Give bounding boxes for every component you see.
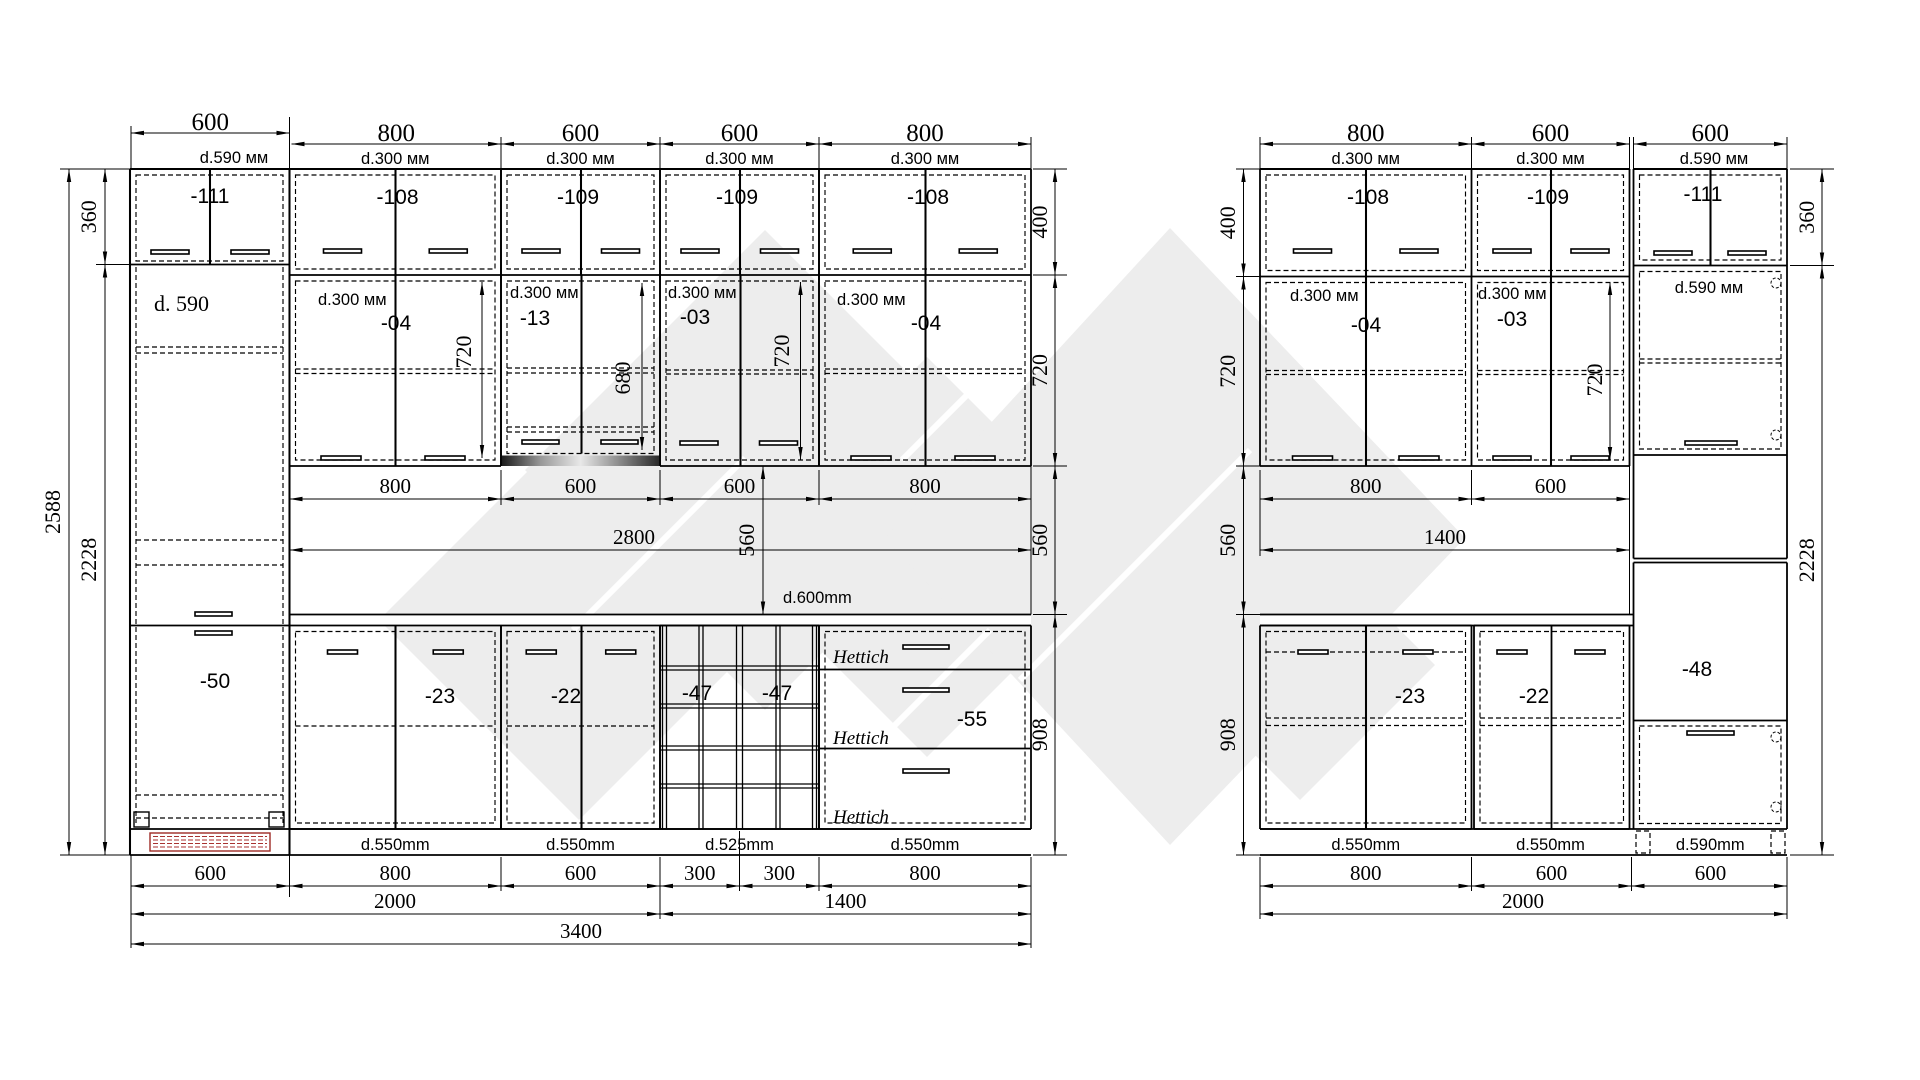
svg-text:d.550mm: d.550mm [1516, 836, 1585, 854]
svg-text:600: 600 [1692, 120, 1730, 147]
svg-text:800: 800 [1347, 120, 1385, 147]
svg-text:720: 720 [1582, 364, 1607, 397]
svg-text:360: 360 [1794, 201, 1819, 234]
svg-text:-50: -50 [200, 670, 230, 693]
svg-text:560: 560 [1215, 524, 1240, 557]
svg-text:d.300 мм: d.300 мм [1290, 287, 1359, 305]
svg-text:-109: -109 [716, 186, 758, 209]
svg-text:-03: -03 [1497, 308, 1527, 331]
svg-text:d.300 мм: d.300 мм [891, 150, 960, 168]
svg-text:800: 800 [906, 120, 944, 147]
svg-text:720: 720 [451, 336, 476, 369]
svg-text:d.300 мм: d.300 мм [546, 150, 615, 168]
svg-text:d.300 мм: d.300 мм [1478, 285, 1547, 303]
svg-text:-23: -23 [1395, 685, 1425, 708]
svg-text:d.590 мм: d.590 мм [1680, 150, 1749, 168]
svg-text:600: 600 [1532, 120, 1570, 147]
svg-text:2228: 2228 [76, 538, 101, 582]
svg-text:d.300 мм: d.300 мм [361, 150, 430, 168]
svg-text:-111: -111 [1684, 183, 1723, 206]
svg-text:-48: -48 [1682, 658, 1712, 681]
svg-text:2588: 2588 [40, 490, 65, 534]
svg-text:d.300 мм: d.300 мм [510, 284, 579, 302]
svg-text:800: 800 [909, 474, 941, 498]
svg-text:600: 600 [565, 861, 597, 885]
svg-text:800: 800 [909, 861, 941, 885]
svg-text:-04: -04 [911, 312, 942, 335]
svg-text:3400: 3400 [560, 919, 602, 943]
svg-text:d. 590: d. 590 [154, 291, 209, 316]
svg-text:1400: 1400 [825, 889, 867, 913]
svg-text:d.550mm: d.550mm [546, 836, 615, 854]
svg-text:d.300 мм: d.300 мм [318, 291, 387, 309]
svg-text:600: 600 [195, 861, 227, 885]
svg-text:d.300 мм: d.300 мм [837, 291, 906, 309]
svg-text:d.590 мм: d.590 мм [1675, 279, 1744, 297]
svg-text:600: 600 [724, 474, 756, 498]
svg-text:-55: -55 [957, 708, 987, 731]
svg-text:720: 720 [769, 335, 794, 368]
svg-text:600: 600 [1536, 861, 1568, 885]
svg-text:-03: -03 [680, 306, 710, 329]
svg-text:-22: -22 [551, 685, 581, 708]
svg-text:-47: -47 [762, 682, 792, 705]
svg-text:-04: -04 [381, 312, 412, 335]
svg-text:2228: 2228 [1794, 538, 1819, 582]
svg-text:360: 360 [76, 200, 101, 233]
svg-text:-04: -04 [1351, 314, 1382, 337]
svg-text:680: 680 [610, 362, 635, 395]
svg-text:d.550mm: d.550mm [891, 836, 960, 854]
svg-text:d.300 мм: d.300 мм [668, 284, 737, 302]
svg-text:-109: -109 [557, 186, 599, 209]
svg-text:Hettich: Hettich [832, 647, 889, 668]
svg-text:300: 300 [684, 861, 716, 885]
svg-text:2800: 2800 [613, 525, 655, 549]
svg-text:600: 600 [565, 474, 597, 498]
svg-text:800: 800 [1350, 474, 1382, 498]
svg-text:-47: -47 [682, 682, 712, 705]
svg-text:-109: -109 [1527, 186, 1569, 209]
svg-text:d.300 мм: d.300 мм [705, 150, 774, 168]
svg-text:Hettich: Hettich [832, 728, 889, 749]
svg-text:800: 800 [380, 861, 412, 885]
svg-text:2000: 2000 [1502, 889, 1544, 913]
svg-text:600: 600 [721, 120, 759, 147]
svg-text:800: 800 [378, 120, 416, 147]
svg-text:600: 600 [1535, 474, 1567, 498]
svg-text:560: 560 [734, 524, 759, 557]
svg-text:-22: -22 [1519, 685, 1549, 708]
svg-text:d.550mm: d.550mm [361, 836, 430, 854]
svg-text:800: 800 [1350, 861, 1382, 885]
svg-text:d.300 мм: d.300 мм [1516, 150, 1585, 168]
svg-text:-108: -108 [907, 186, 949, 209]
svg-text:908: 908 [1215, 718, 1240, 751]
svg-text:-108: -108 [1347, 186, 1389, 209]
svg-text:600: 600 [192, 109, 230, 136]
svg-text:-23: -23 [425, 685, 455, 708]
svg-text:-111: -111 [191, 185, 230, 208]
svg-text:600: 600 [562, 120, 600, 147]
svg-text:1400: 1400 [1424, 525, 1466, 549]
svg-text:300: 300 [764, 861, 796, 885]
svg-text:Hettich: Hettich [832, 807, 889, 828]
svg-text:600: 600 [1695, 861, 1727, 885]
svg-text:-13: -13 [520, 307, 550, 330]
svg-text:2000: 2000 [374, 889, 416, 913]
svg-text:400: 400 [1215, 206, 1240, 239]
svg-text:d.300 мм: d.300 мм [1331, 150, 1400, 168]
svg-text:d.590 мм: d.590 мм [200, 149, 269, 167]
svg-text:d.600mm: d.600mm [783, 589, 852, 607]
svg-text:720: 720 [1215, 355, 1240, 388]
svg-text:d.550mm: d.550mm [1331, 836, 1400, 854]
svg-text:800: 800 [380, 474, 412, 498]
svg-text:-108: -108 [376, 186, 418, 209]
svg-text:d.590mm: d.590mm [1676, 836, 1745, 854]
